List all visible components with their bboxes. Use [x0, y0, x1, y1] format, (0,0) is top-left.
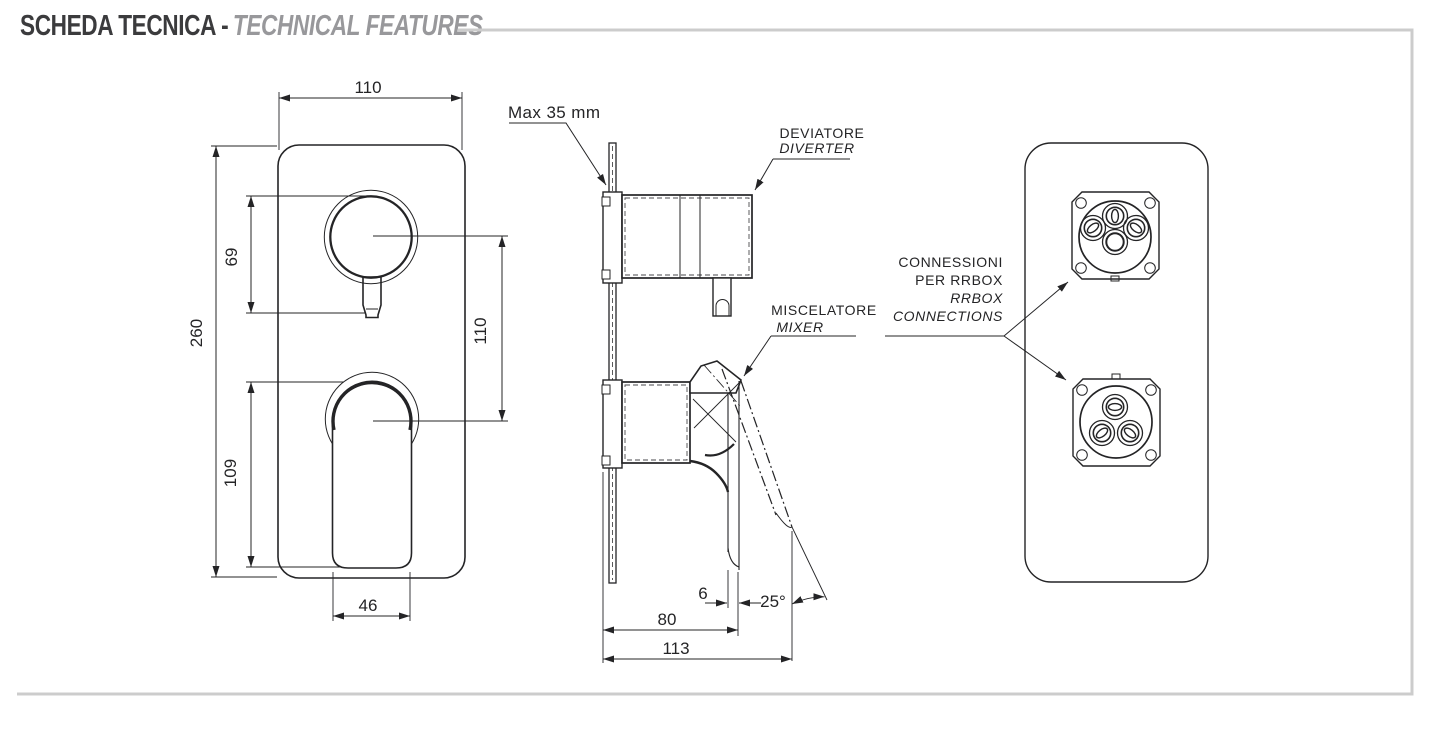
dim-tip-offset-value: 6 — [698, 584, 707, 603]
connections-label: CONNESSIONI PER RRBOX RRBOX CONNECTIONS — [885, 254, 1068, 380]
mixer-label-en: MIXER — [776, 319, 823, 335]
dim-mixer-width-value: 46 — [359, 596, 378, 615]
mixer-connection-box — [1073, 374, 1160, 466]
dim-mixer-height: 109 — [221, 382, 344, 567]
wall-note-text: Max 35 mm — [508, 103, 600, 122]
diverter-flange-clip-bottom — [602, 270, 610, 279]
technical-sheet: SCHEDA TECNICA -TECHNICAL FEATURES — [0, 0, 1448, 732]
diverter-label-it: DEVIATORE — [779, 125, 864, 141]
diverter-connection-box — [1072, 192, 1159, 281]
mixer-lever-side — [690, 361, 792, 570]
dim-diverter-height: 69 — [222, 196, 372, 313]
dim-center-distance-value: 110 — [471, 317, 490, 344]
connections-label-line3: RRBOX — [950, 290, 1003, 306]
diverter-label-en: DIVERTER — [779, 140, 854, 156]
dim-lever-angle-value: 25° — [760, 592, 786, 611]
front-view: 110 69 260 110 — [187, 78, 508, 621]
dim-tip-offset: 6 — [698, 570, 761, 636]
dim-body-depth: 80 — [603, 472, 738, 663]
mixer-lever — [333, 384, 412, 568]
dim-overall-height-value: 260 — [187, 319, 206, 347]
mixer-body-side — [622, 382, 690, 463]
dim-total-depth: 113 — [603, 639, 792, 659]
mixer-label-it: MISCELATORE — [771, 302, 877, 318]
technical-drawing: 110 69 260 110 — [0, 0, 1448, 732]
mixer-label: MISCELATORE MIXER — [744, 302, 877, 376]
dim-body-depth-value: 80 — [658, 610, 677, 629]
diverter-label: DEVIATORE DIVERTER — [755, 125, 865, 190]
dim-diverter-height-value: 69 — [222, 248, 241, 267]
diverter-escutcheon — [324, 190, 417, 283]
wall-thickness-note: Max 35 mm — [508, 103, 606, 185]
dim-plate-width: 110 — [279, 78, 462, 150]
mixer-flange-clip-top — [602, 385, 610, 394]
connections-label-line1: CONNESSIONI — [898, 254, 1003, 270]
back-view: CONNESSIONI PER RRBOX RRBOX CONNECTIONS — [885, 143, 1208, 582]
diverter-knob — [330, 196, 411, 277]
connections-label-line2: PER RRBOX — [915, 272, 1003, 288]
diverter-flange-clip-top — [602, 197, 610, 206]
dim-mixer-height-value: 109 — [221, 459, 240, 487]
connections-label-line4: CONNECTIONS — [893, 308, 1003, 324]
dim-total-depth-value: 113 — [662, 639, 689, 658]
dim-mixer-width: 46 — [333, 572, 410, 621]
dim-overall-height: 260 — [187, 146, 277, 577]
dim-lever-angle: 25° — [760, 527, 827, 661]
mixer-flange-clip-bottom — [602, 456, 610, 465]
dim-plate-width-value: 110 — [354, 78, 381, 97]
diverter-body-side — [622, 195, 752, 278]
side-view: Max 35 mm DEVIATORE DIVERTER MISCELATORE… — [508, 103, 877, 663]
